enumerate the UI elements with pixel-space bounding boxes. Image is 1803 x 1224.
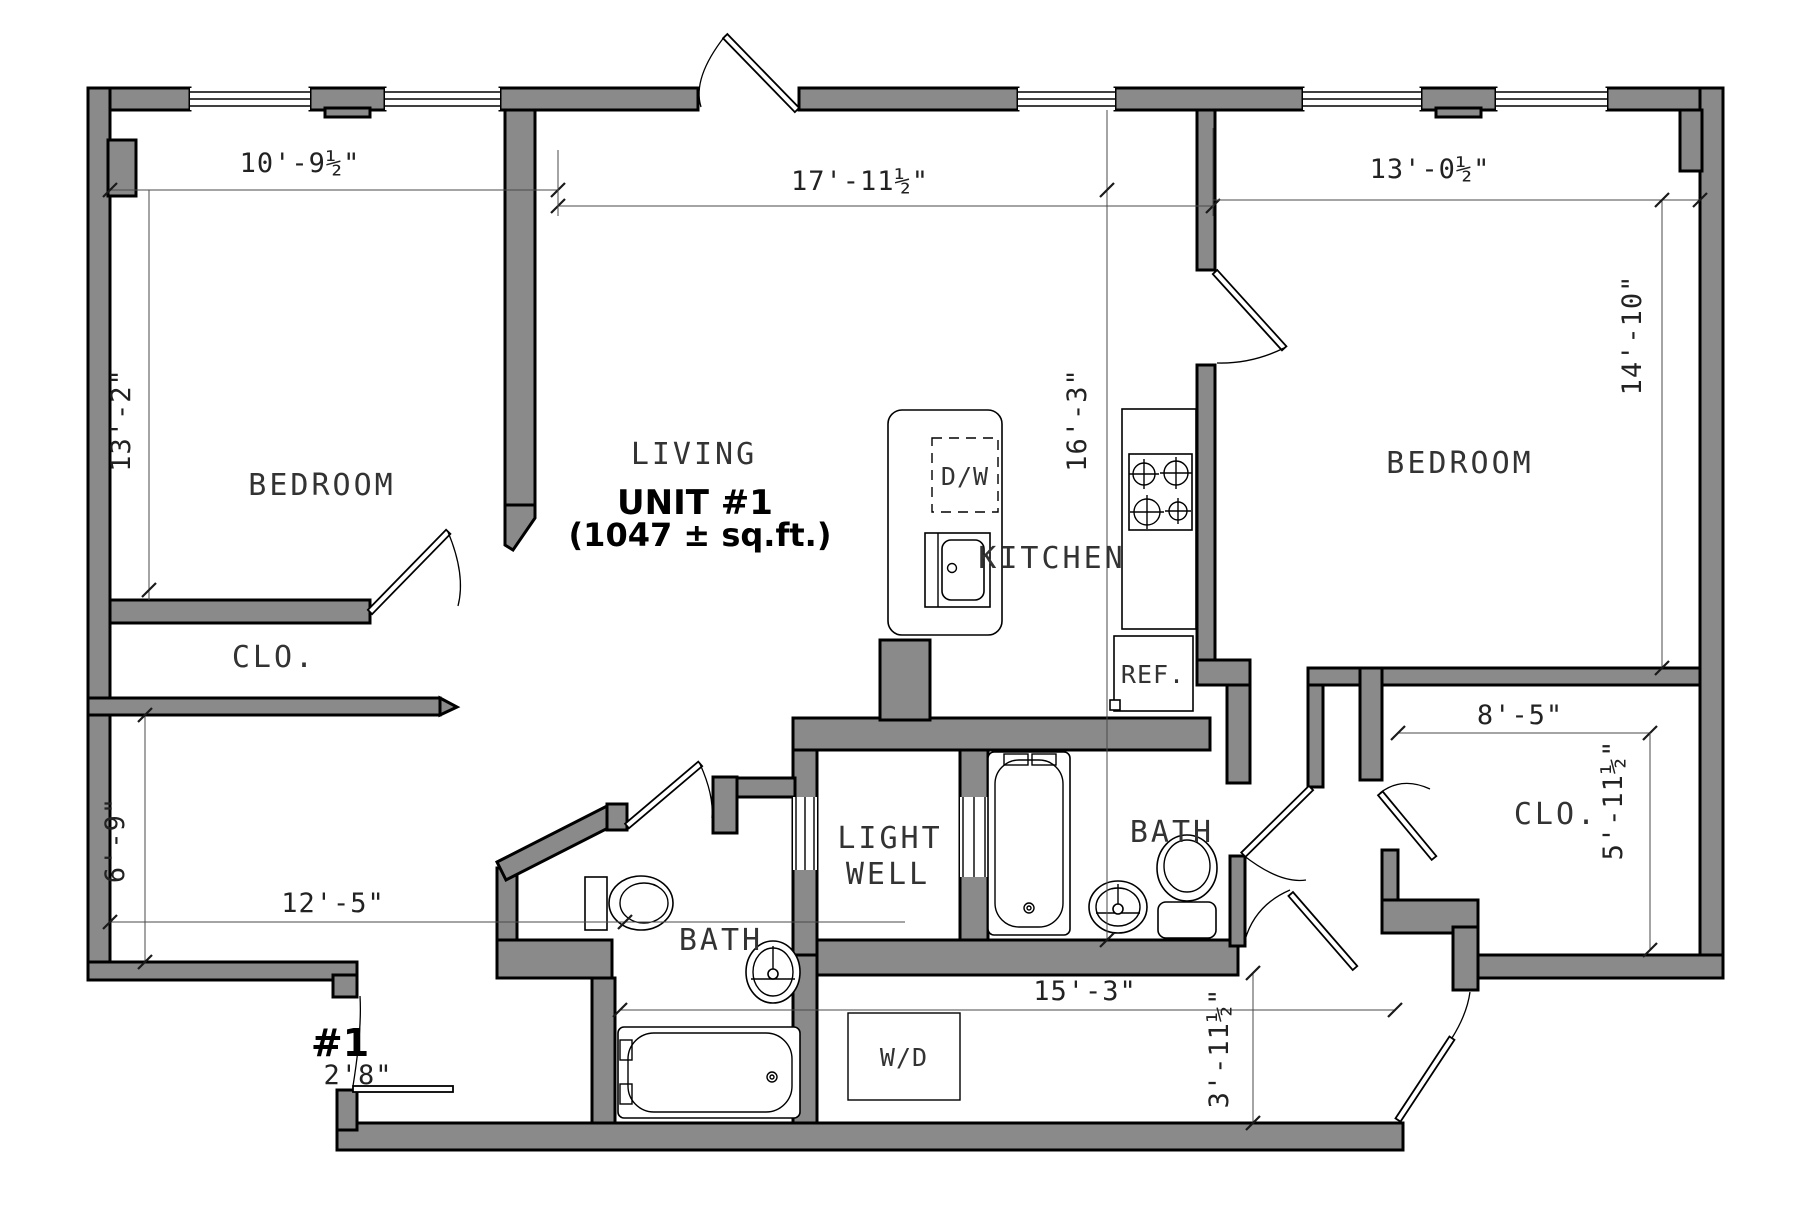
door-corridor-right — [1395, 992, 1470, 1122]
label-living: LIVING — [631, 437, 757, 472]
door-bath-left — [625, 762, 712, 829]
dim-top-right: 13'-0½" — [1370, 154, 1491, 185]
label-bath-right: BATH — [1130, 815, 1214, 850]
door-bedroom-left — [368, 530, 461, 614]
dim-top-left: 10'-9½" — [240, 148, 361, 179]
dim-closet-width: 8'-5" — [1477, 700, 1563, 731]
window-bedroom-left-2 — [385, 88, 500, 110]
label-door-width: 2'8" — [323, 1060, 392, 1091]
window-bedroom-right-2 — [1496, 88, 1607, 110]
label-unit-area: (1047 ± sq.ft.) — [569, 516, 832, 554]
bathtub-left-icon — [618, 1027, 800, 1118]
label-kitchen: KITCHEN — [978, 541, 1125, 576]
label-bedroom-left: BEDROOM — [248, 468, 395, 503]
window-lightwell-right — [960, 797, 988, 877]
label-closet-right: CLO. — [1514, 797, 1598, 832]
dim-bottom-middle: 15'-3" — [1033, 976, 1137, 1007]
dim-left-lower: 6'-9" — [100, 797, 131, 883]
dim-top-middle: 17'-11½" — [791, 166, 929, 197]
dim-kitchen-depth: 16'-3" — [1062, 368, 1093, 472]
dim-bottom-left: 12'-5" — [281, 888, 385, 919]
kitchen-island — [888, 410, 1002, 635]
door-hall — [1245, 890, 1357, 970]
label-door-number: #1 — [311, 1021, 369, 1065]
label-refrigerator: REF. — [1121, 660, 1185, 689]
door-closet-right — [1378, 783, 1436, 860]
label-light-well-1: LIGHT — [837, 821, 942, 856]
toilet-right-icon — [1157, 835, 1217, 938]
window-living — [1018, 88, 1115, 110]
label-light-well-2: WELL — [846, 857, 930, 892]
label-bath-left: BATH — [679, 923, 763, 958]
window-lightwell-left — [793, 797, 817, 870]
label-dishwasher: D/W — [941, 462, 989, 491]
label-bedroom-right: BEDROOM — [1386, 446, 1533, 481]
stove-icon — [1129, 454, 1192, 530]
window-bedroom-right-1 — [1303, 88, 1421, 110]
kitchen-counter — [1122, 409, 1196, 629]
dim-corridor: 3'-11½" — [1204, 988, 1235, 1109]
label-washer-dryer: W/D — [880, 1043, 928, 1072]
dim-left-upper: 13'-2" — [106, 368, 137, 472]
bathtub-right-icon — [988, 752, 1070, 935]
door-top-entry — [699, 34, 799, 112]
door-bedroom-right — [1213, 270, 1287, 363]
window-bedroom-left-1 — [190, 88, 310, 110]
dim-closet-depth: 5'-11½" — [1598, 740, 1629, 861]
door-bath-right — [1241, 786, 1313, 881]
sink-right-icon — [1089, 881, 1147, 933]
floor-plan: BEDROOM LIVING UNIT #1 (1047 ± sq.ft.) K… — [0, 0, 1803, 1224]
label-closet-left: CLO. — [232, 640, 316, 675]
dim-right-upper: 14'-10" — [1617, 275, 1648, 396]
